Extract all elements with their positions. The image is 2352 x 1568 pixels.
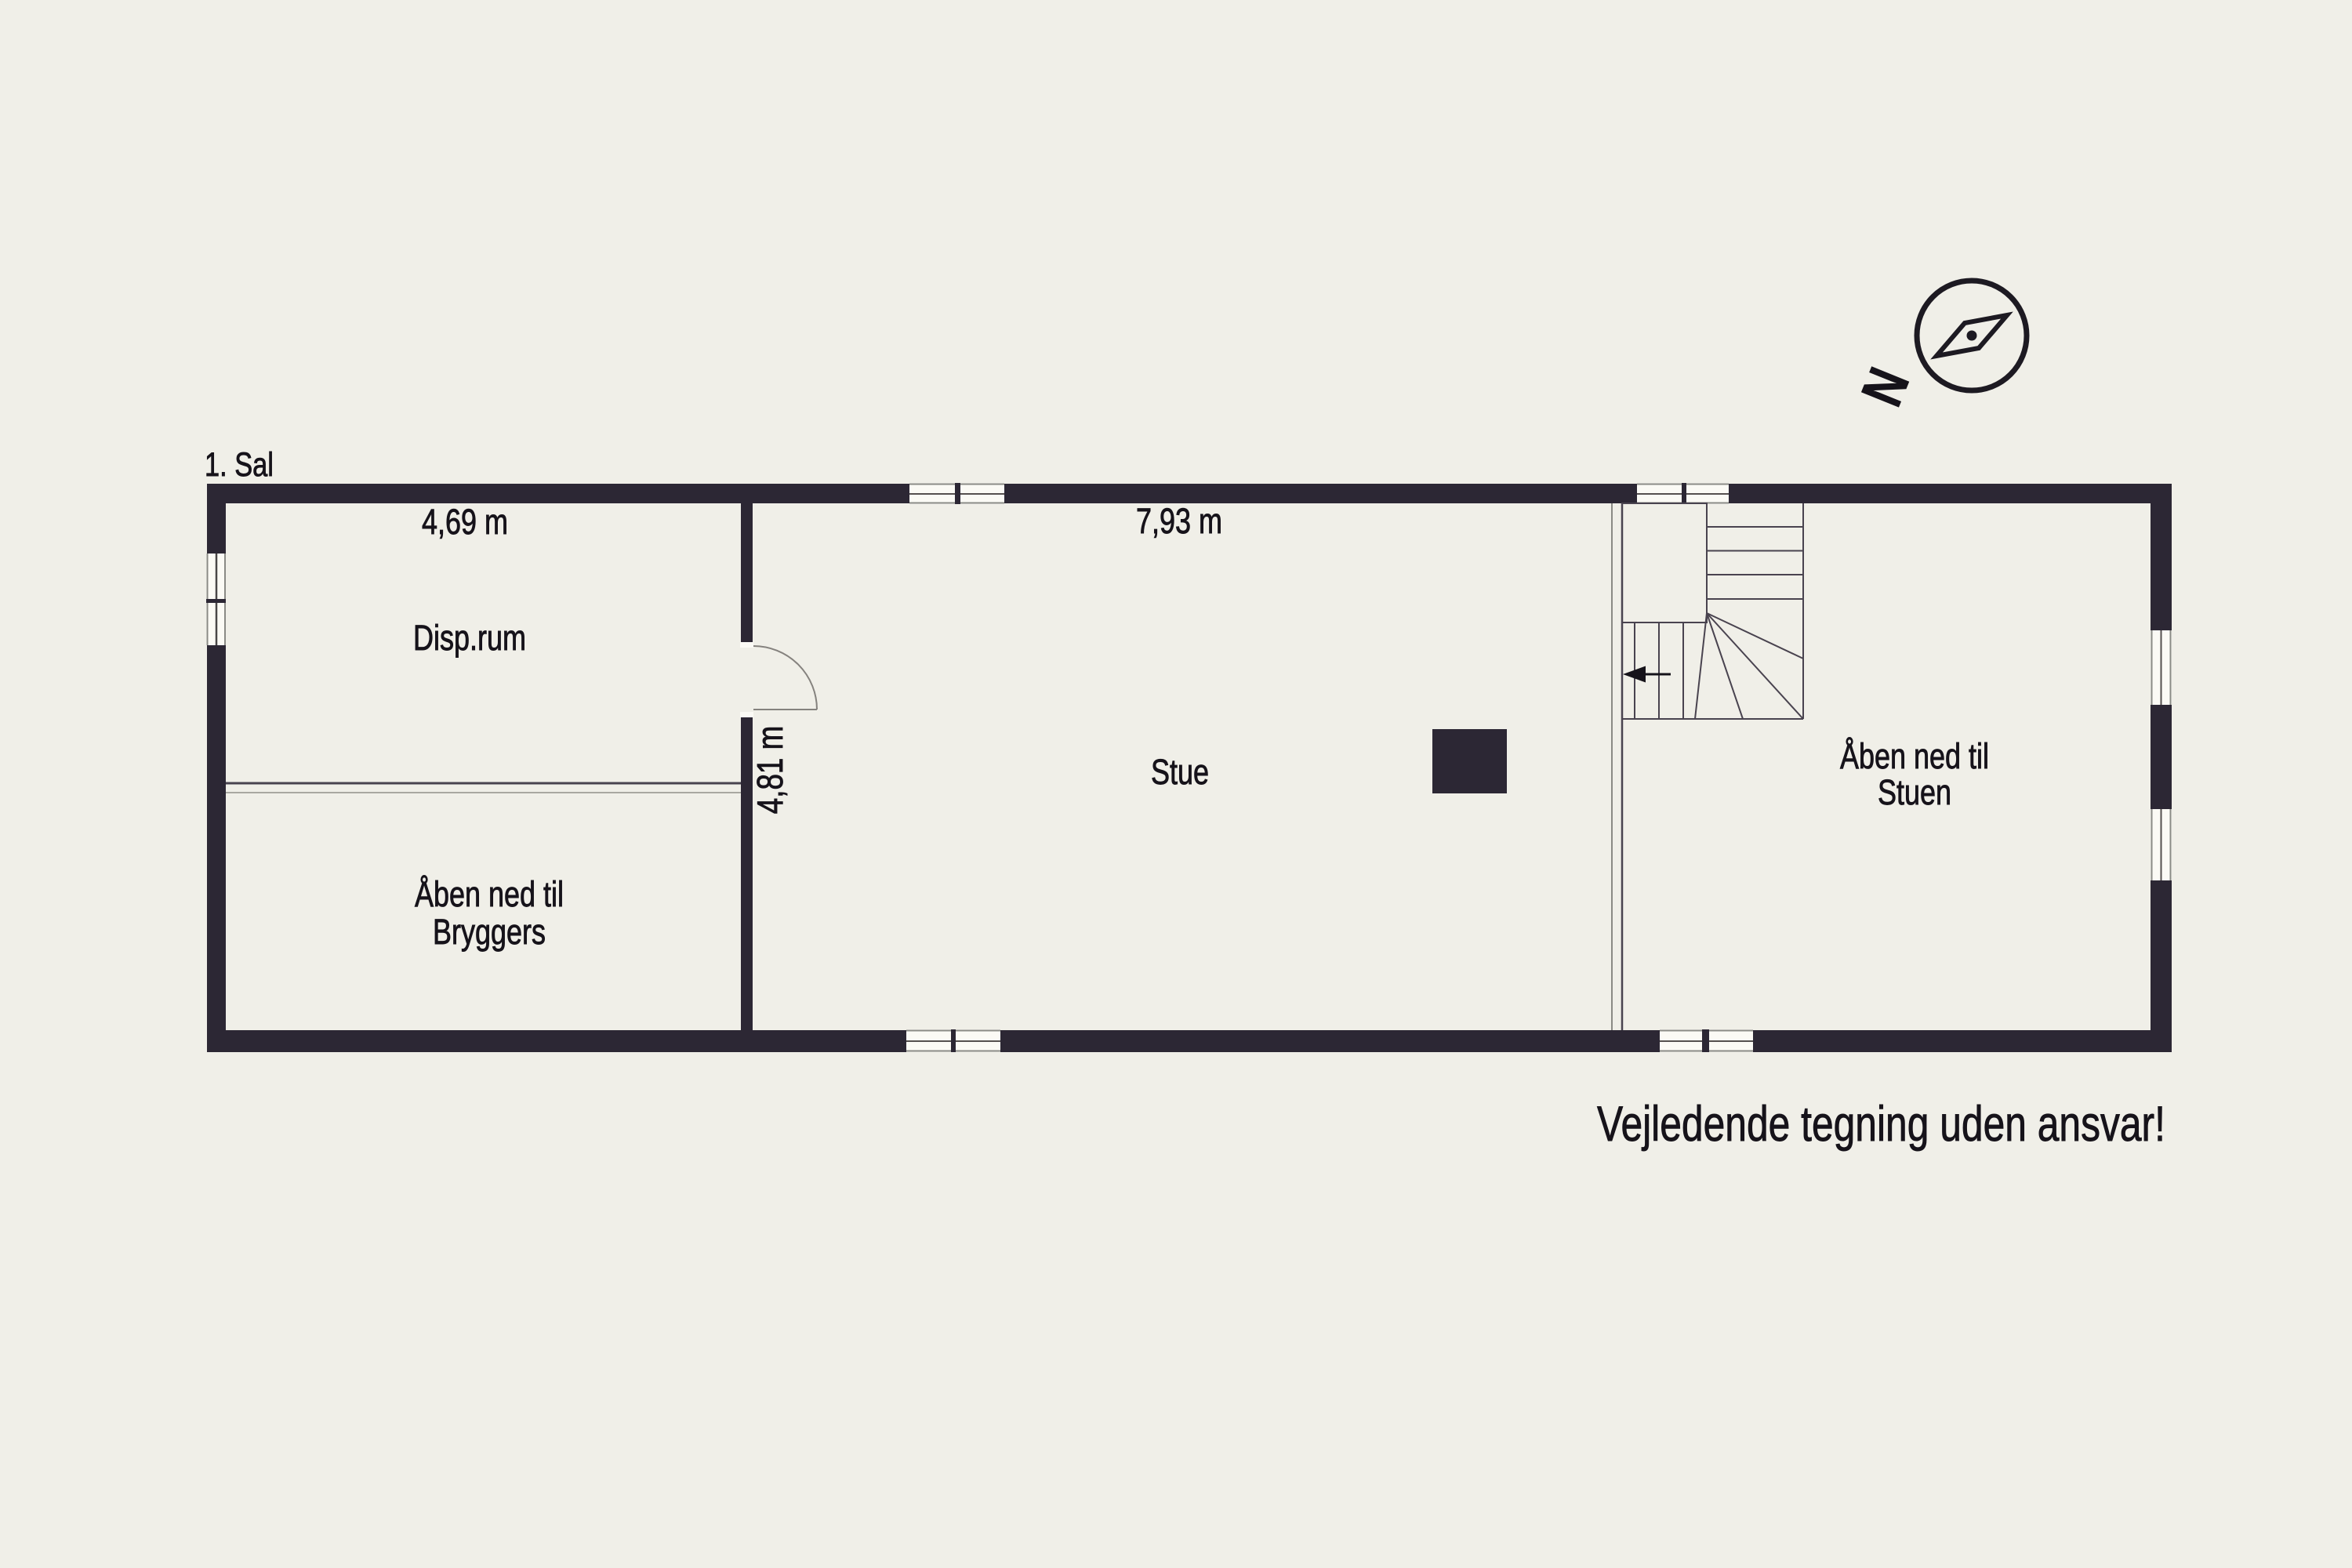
svg-text:Disp.rum: Disp.rum bbox=[413, 618, 526, 658]
svg-text:7,93 m: 7,93 m bbox=[1136, 501, 1222, 541]
svg-text:Åben ned til: Åben ned til bbox=[415, 874, 564, 914]
svg-text:Åben ned til: Åben ned til bbox=[1840, 736, 1989, 776]
svg-text:Stuen: Stuen bbox=[1878, 772, 1951, 812]
svg-text:Bryggers: Bryggers bbox=[433, 912, 546, 952]
svg-text:Vejledende tegning uden ansvar: Vejledende tegning uden ansvar! bbox=[1597, 1098, 2165, 1152]
svg-text:Stue: Stue bbox=[1151, 752, 1209, 792]
svg-text:4,69 m: 4,69 m bbox=[422, 502, 508, 542]
svg-text:1. Sal: 1. Sal bbox=[205, 446, 274, 483]
svg-text:4,81 m: 4,81 m bbox=[750, 726, 790, 814]
